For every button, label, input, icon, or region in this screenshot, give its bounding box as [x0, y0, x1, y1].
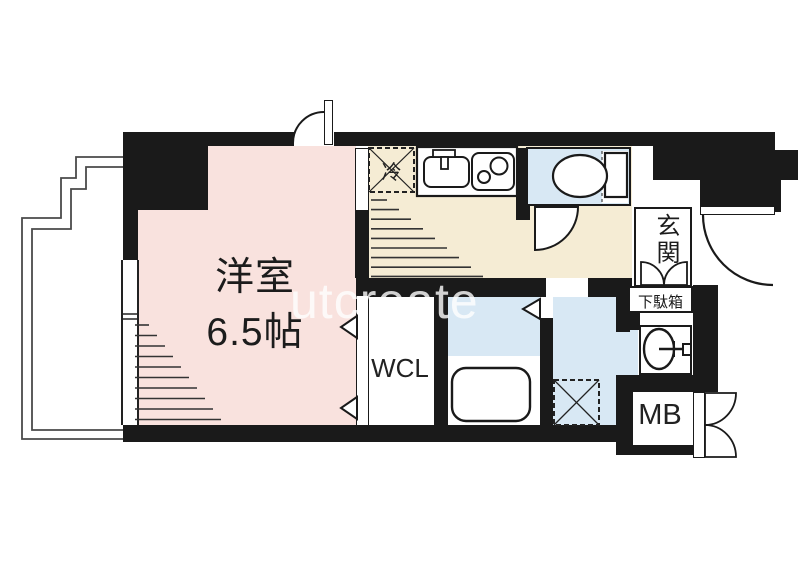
mb-double-door	[705, 393, 736, 457]
wall-topright-nub	[775, 150, 798, 180]
wall-topright-block	[653, 132, 775, 180]
wall-room-kitchen	[355, 211, 369, 278]
wall-top-right	[334, 132, 660, 146]
toilet-white-band	[602, 151, 628, 203]
mb-door-jamb	[693, 392, 705, 458]
wall-niche-band	[616, 375, 693, 392]
balcony-railing	[22, 157, 123, 439]
top-door-leaf	[324, 100, 333, 145]
washroom-floor	[553, 297, 617, 425]
washroom-door-gap	[546, 280, 588, 297]
window	[121, 260, 139, 425]
shoe-cabinet-label: 下駄箱	[628, 291, 693, 312]
washbasin-icon	[640, 326, 691, 374]
meter-box-label: MB	[629, 399, 691, 432]
wall-wash-stub2	[616, 312, 640, 330]
entry-door-arc	[703, 215, 773, 285]
wcl-label: WCL	[367, 353, 433, 384]
refrigerator-label: 冷	[369, 148, 414, 192]
bathtub-area-floor	[448, 356, 540, 425]
washroom-floor-notch	[617, 330, 638, 375]
kitchen-sliding-door	[355, 148, 369, 211]
wall-topleft-mass	[123, 132, 208, 210]
wall-bottom	[123, 425, 620, 442]
entry-door-leaf	[700, 206, 775, 215]
entrance-label: 玄関	[648, 213, 683, 271]
wall-right-column	[693, 285, 718, 392]
wall-bath-wash	[540, 318, 553, 425]
watermark: utcreate	[290, 272, 479, 330]
wall-left-stub	[123, 210, 138, 263]
floor-plan: 洋室 6.5帖 WCL MB 玄関 下駄箱 冷 utcreate	[0, 0, 800, 586]
wall-mb-bottom	[616, 445, 693, 455]
